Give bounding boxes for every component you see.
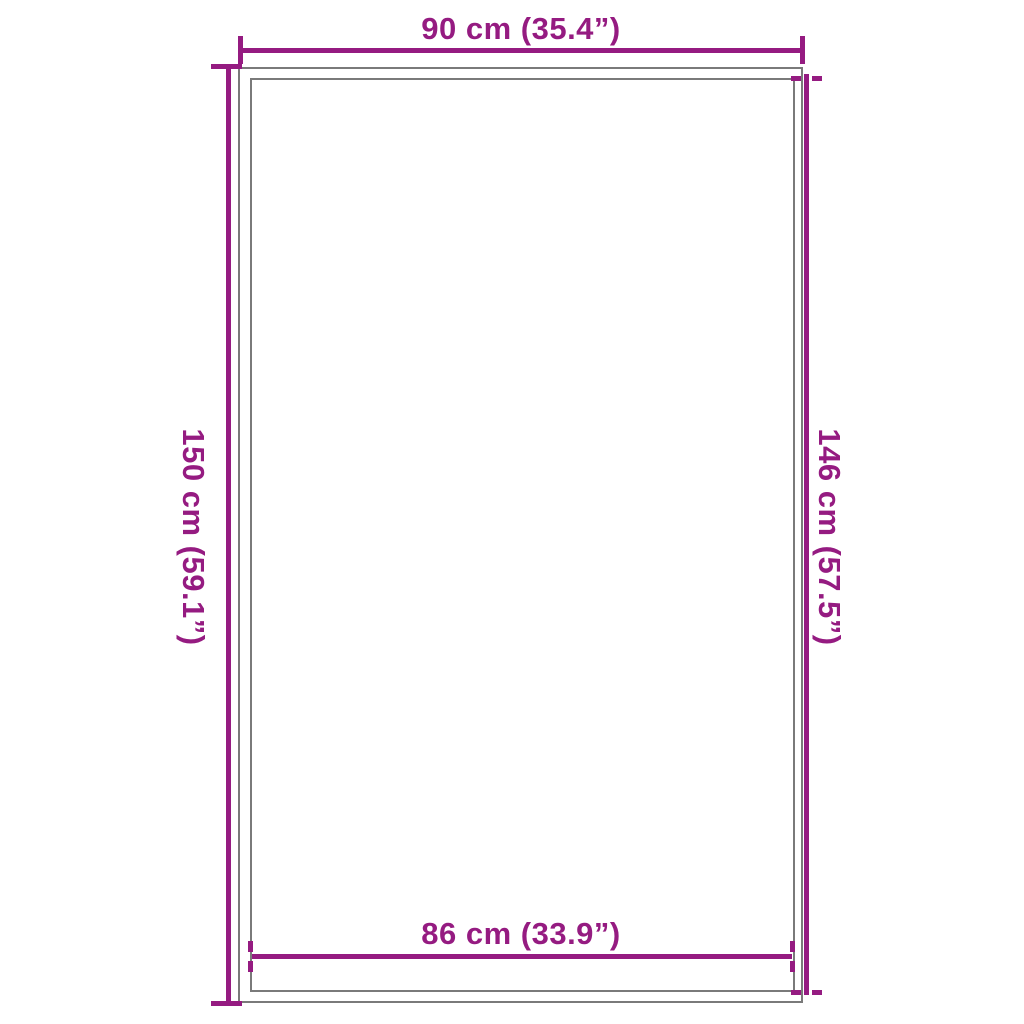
- right-dimension-label: 146 cm (57.5”): [811, 428, 847, 645]
- top-dimension-tick-left: [238, 36, 243, 64]
- right-dimension-tick-bottom-dash-right: [812, 990, 822, 995]
- product-outline-inner: [250, 78, 795, 992]
- bottom-dimension-tick-left-dash-top: [248, 941, 253, 952]
- left-dimension-tick-bottom: [211, 1001, 242, 1006]
- dimension-diagram: 90 cm (35.4”) 150 cm (59.1”) 146 cm (57.…: [0, 0, 1024, 1024]
- left-dimension-line: [226, 66, 231, 1004]
- left-dimension-label: 150 cm (59.1”): [175, 428, 211, 645]
- right-dimension-line: [804, 74, 809, 995]
- top-dimension-tick-right: [800, 36, 805, 64]
- top-dimension-label: 90 cm (35.4”): [421, 11, 621, 47]
- bottom-dimension-line: [252, 954, 792, 959]
- right-dimension-tick-top-dash-left: [791, 76, 801, 81]
- bottom-dimension-label: 86 cm (33.9”): [421, 916, 621, 952]
- bottom-dimension-tick-right-dash-bottom: [790, 961, 795, 972]
- bottom-dimension-tick-left-dash-bottom: [248, 961, 253, 972]
- bottom-dimension-tick-right-dash-top: [790, 941, 795, 952]
- right-dimension-tick-bottom-dash-left: [791, 990, 801, 995]
- right-dimension-tick-top-dash-right: [812, 76, 822, 81]
- top-dimension-line: [240, 48, 803, 53]
- left-dimension-tick-top: [211, 64, 242, 69]
